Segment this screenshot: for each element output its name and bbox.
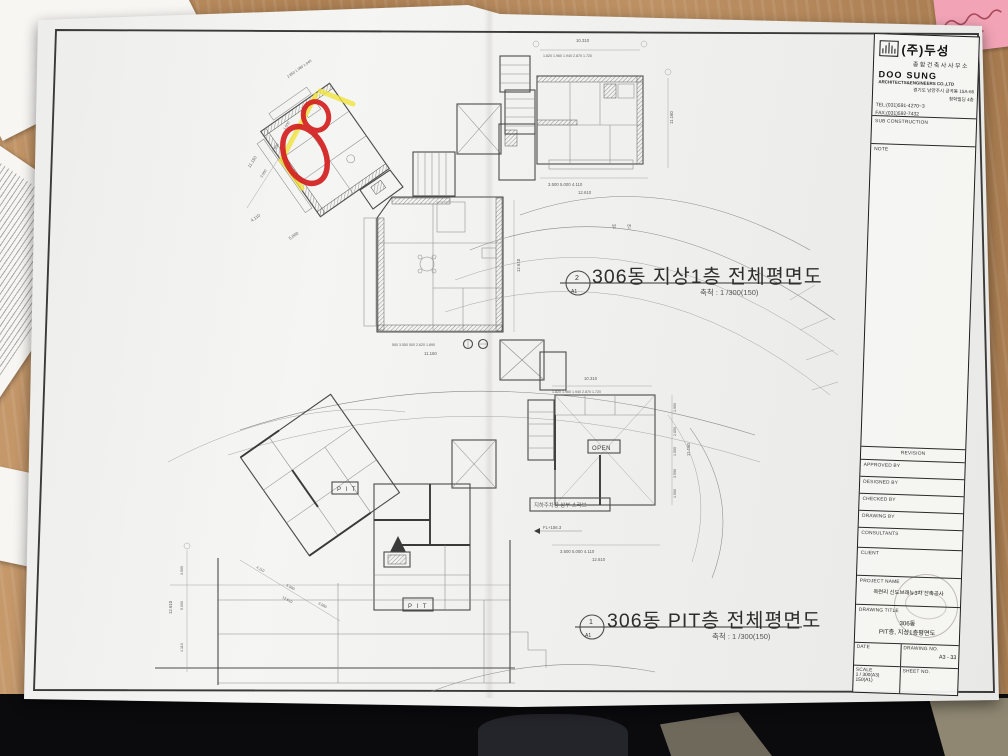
date-drawingno-section: DATE DRAWING NO. A3 - 33: [854, 643, 959, 669]
scale-cell: SCALE 1 / 300(A3) 150(A1): [853, 666, 900, 694]
svg-text:12.610: 12.610: [578, 190, 592, 195]
plan1-title: 306동 지상1층 전체평면도: [592, 260, 823, 289]
svg-text:1.500: 1.500: [673, 489, 677, 498]
unit-top-left: [247, 75, 389, 222]
drawing-sheet: 10.310 1.820 1.960 1.940 2.870 1.720 3.5…: [0, 0, 1008, 756]
sheet-no-cell: SHEET NO.: [899, 667, 958, 695]
svg-text:A1: A1: [571, 289, 577, 295]
svg-text:3.590: 3.590: [673, 469, 677, 478]
note-section: NOTE: [861, 144, 975, 450]
date-cell: DATE: [854, 643, 900, 667]
svg-text:12.610: 12.610: [516, 258, 521, 272]
unit-central: [364, 104, 535, 332]
sub-construction-section: SUB CONSTRUCTION: [871, 116, 976, 147]
plan-pit-cluster: P I T: [155, 340, 723, 692]
drawing-title-line2: PIT층, 지상1층평면도: [858, 626, 956, 638]
svg-text:A1: A1: [585, 633, 591, 639]
svg-text:4.110: 4.110: [256, 565, 266, 573]
svg-text:11.160: 11.160: [669, 111, 674, 124]
photo-scene: 10.310 1.820 1.960 1.940 2.870 1.720 3.5…: [0, 0, 1008, 756]
sheet-wrapper: 10.310 1.820 1.960 1.940 2.870 1.720 3.5…: [0, 0, 1008, 756]
company-name: (주)두성: [901, 39, 949, 60]
svg-text:4.110: 4.110: [250, 212, 262, 222]
svg-text:P I T: P I T: [408, 604, 428, 610]
svg-text:12.610: 12.610: [168, 600, 173, 614]
svg-text:12.610: 12.610: [592, 557, 606, 562]
unit-pit-left: [241, 394, 400, 555]
svg-text:10.310: 10.310: [584, 376, 598, 381]
svg-text:4.110: 4.110: [180, 643, 184, 652]
svg-text:10.310: 10.310: [576, 38, 590, 43]
plan1-scale-note: 축척 : 1 /300(150): [700, 287, 758, 298]
svg-text:P I T: P I T: [337, 487, 357, 493]
plan2-scale-note: 축척 : 1 /300(150): [712, 631, 770, 642]
svg-text:11.150: 11.150: [247, 155, 259, 169]
svg-text:2.850: 2.850: [673, 427, 677, 436]
svg-text:OPEN: OPEN: [592, 446, 611, 452]
svg-text:12.610: 12.610: [282, 595, 294, 604]
client-section: CLIENT: [857, 548, 962, 579]
scale-value2: 150(A1): [855, 678, 897, 684]
svg-text:500 3.550 500 2.620 1.890: 500 3.550 500 2.620 1.890: [392, 343, 435, 347]
drawing-no-cell: DRAWING NO. A3 - 33: [900, 644, 959, 668]
svg-text:1.820 1.960 1.940 2.870 1.720: 1.820 1.960 1.940 2.870 1.720: [552, 390, 601, 394]
svg-text:11.160: 11.160: [424, 351, 437, 356]
drawing-title-section: DRAWING TITLE 306동 PIT층, 지상1층평면도: [855, 605, 960, 646]
svg-text:3.500: 3.500: [180, 566, 184, 575]
svg-text:FL+156.3: FL+156.3: [543, 525, 562, 530]
svg-text:1: 1: [589, 619, 593, 626]
svg-text:3.500 5.000 4.110: 3.500 5.000 4.110: [560, 549, 595, 554]
svg-text:2.850 1.980 1.940: 2.850 1.980 1.940: [286, 59, 312, 79]
svg-text:3.500 5.000 4.110: 3.500 5.000 4.110: [548, 182, 583, 187]
svg-text:5.000: 5.000: [288, 230, 300, 241]
plan2-title: 306동 PIT층 전체평면도: [607, 604, 821, 633]
company-stamp-box: (주)두성 종합건축사사무소 DOO SUNG ARCHITECTS&ENGIN…: [872, 34, 979, 119]
unit-top-right: [500, 56, 643, 169]
svg-text:2: 2: [575, 275, 579, 282]
svg-text:지하주차장 상부 스라브: 지하주차장 상부 스라브: [534, 501, 587, 509]
company-type: 종합건축사사무소: [877, 58, 969, 70]
svg-text:5.000: 5.000: [286, 583, 296, 591]
project-name-value: 옥련리 신도브래뉴3차 신축공사: [859, 587, 957, 598]
drawing-no-value: A3 - 33: [903, 653, 956, 661]
svg-text:1.820 1.960 1.940 2.870 1.720: 1.820 1.960 1.940 2.870 1.720: [543, 54, 592, 58]
red-pen-circles: [274, 98, 336, 190]
title-block: (주)두성 종합건축사사무소 DOO SUNG ARCHITECTS&ENGIN…: [852, 33, 980, 696]
svg-text:5.000: 5.000: [180, 601, 184, 610]
svg-text:1.950: 1.950: [673, 403, 677, 412]
scale-sheetno-section: SCALE 1 / 300(A3) 150(A1) SHEET NO.: [853, 666, 958, 695]
svg-text:1.500: 1.500: [673, 447, 677, 456]
svg-text:법 면: 법 면: [612, 223, 636, 229]
border-frame: [34, 30, 994, 692]
doosung-logo-icon: [879, 40, 899, 57]
project-name-section: PROJECT NAME 옥련리 신도브래뉴3차 신축공사: [856, 576, 961, 608]
